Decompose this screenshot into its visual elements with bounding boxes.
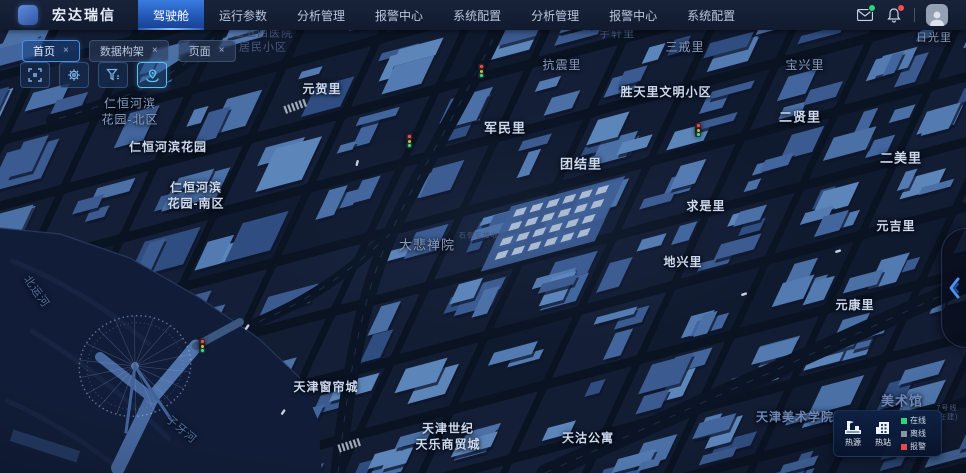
nav-item-1[interactable]: 运行参数 [204, 0, 282, 30]
nav-item-3[interactable]: 报警中心 [360, 0, 438, 30]
heat-source-label: 热源 [845, 437, 861, 448]
building-icon [873, 419, 893, 435]
legend-swatch [901, 444, 907, 450]
topbar-divider [914, 8, 915, 22]
legend-item-1: 离线 [901, 428, 926, 439]
legend-panel: 热源 热站 在线离线报警 [833, 410, 942, 457]
filter-icon[interactable] [98, 62, 128, 88]
legend-item-2: 报警 [901, 441, 926, 452]
tab-1[interactable]: 数据构架× [89, 40, 169, 62]
legend-label: 在线 [910, 415, 926, 426]
legend-label: 报警 [910, 441, 926, 452]
tab-label: 数据构架 [100, 43, 144, 59]
nav-item-7[interactable]: 系统配置 [672, 0, 750, 30]
legend-label: 离线 [910, 428, 926, 439]
mail-status-dot [868, 4, 876, 12]
topbar: 宏达瑞信 驾驶舱运行参数分析管理报警中心系统配置分析管理报警中心系统配置 [0, 0, 966, 30]
nav-item-4[interactable]: 系统配置 [438, 0, 516, 30]
map-toolbar [20, 62, 167, 88]
tab-close-icon[interactable]: × [63, 46, 69, 56]
app-title: 宏达瑞信 [52, 5, 116, 25]
gear-icon[interactable] [59, 62, 89, 88]
tab-label: 首页 [33, 43, 55, 59]
fullscreen-icon[interactable] [20, 62, 50, 88]
topbar-right [856, 4, 948, 26]
tab-close-icon[interactable]: × [219, 46, 225, 56]
page-tabs: 首页×数据构架×页面× [22, 40, 236, 62]
nav-item-5[interactable]: 分析管理 [516, 0, 594, 30]
tab-close-icon[interactable]: × [152, 46, 158, 56]
nav-item-6[interactable]: 报警中心 [594, 0, 672, 30]
nav-item-0[interactable]: 驾驶舱 [138, 0, 204, 30]
bell-status-dot [897, 4, 905, 12]
tab-2[interactable]: 页面× [178, 40, 236, 62]
nav-item-2[interactable]: 分析管理 [282, 0, 360, 30]
factory-icon [843, 419, 863, 435]
legend-keys: 在线离线报警 [901, 415, 926, 452]
heat-station-button[interactable]: 热站 [868, 419, 898, 448]
legend-item-0: 在线 [901, 415, 926, 426]
dashboard-root: 宇轩里二五四医院 居民小区元贺里仁恒河滨 花园-北区仁恒河滨花园仁恒河滨 花园-… [0, 0, 966, 473]
app-logo [18, 5, 38, 25]
main-nav: 驾驶舱运行参数分析管理报警中心系统配置分析管理报警中心系统配置 [138, 0, 750, 30]
tab-0[interactable]: 首页× [22, 40, 80, 62]
bell-icon[interactable] [885, 6, 903, 24]
heat-source-button[interactable]: 热源 [838, 419, 868, 448]
legend-swatch [901, 418, 907, 424]
tab-label: 页面 [189, 43, 211, 59]
mail-icon[interactable] [856, 6, 874, 24]
side-panel-toggle[interactable] [941, 228, 966, 348]
avatar[interactable] [926, 4, 948, 26]
marker-icon[interactable] [137, 62, 167, 88]
heat-station-label: 热站 [875, 437, 891, 448]
legend-swatch [901, 431, 907, 437]
